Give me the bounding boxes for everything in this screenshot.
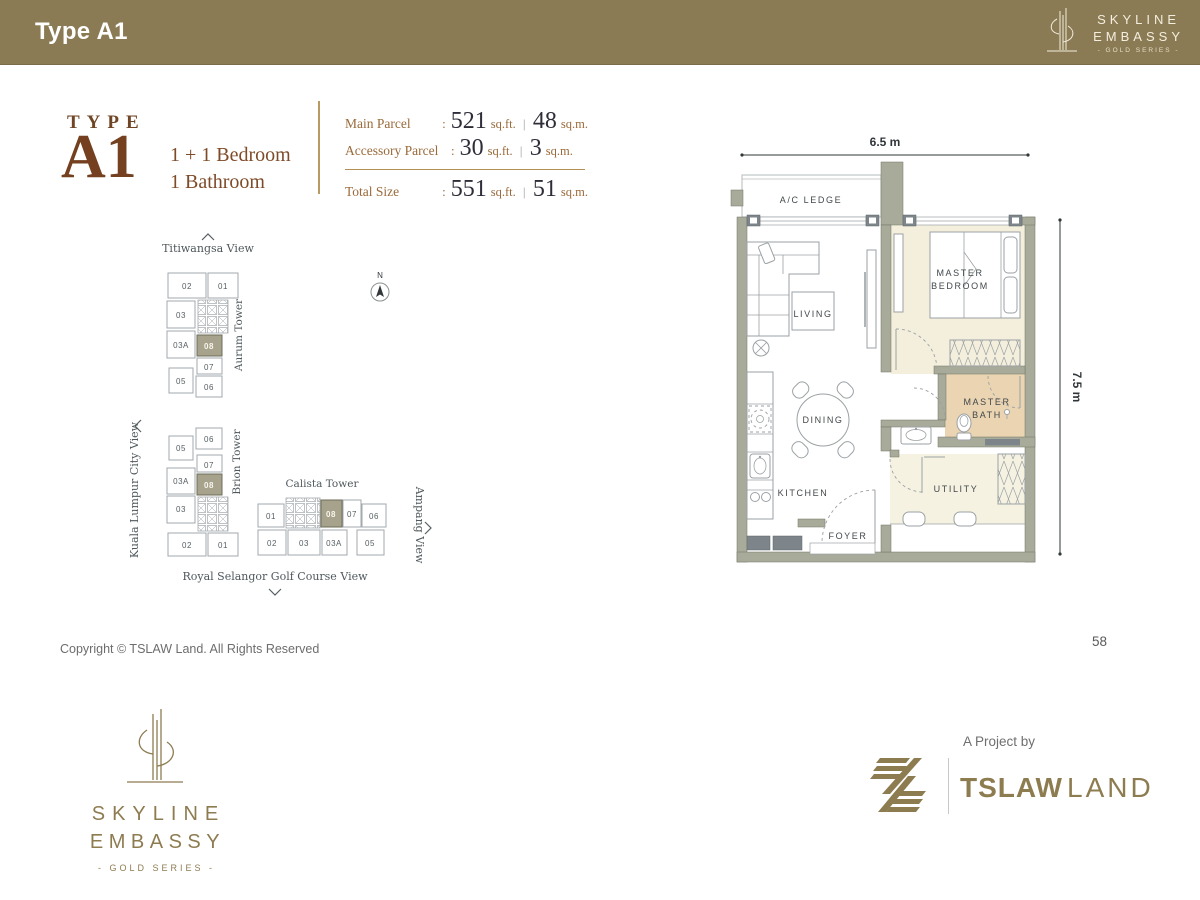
header-brand-logo: SKYLINE EMBASSY - GOLD SERIES - [1040,5,1184,59]
utility-wardrobe [998,454,1025,504]
unit-label: 06 [204,383,214,392]
parcel-sqm: 51 [533,176,557,203]
developer-name: TSLAWLAND [960,772,1154,804]
developer-block: A Project by TSLAWLAND [860,732,1160,842]
brion-tower: 06 05 07 03A 08 03 02 01 Brion Tower [167,428,243,556]
parcel-separator: | [520,144,523,158]
unit-label: 01 [218,541,228,550]
title-bar: Type A1 SKYLINE EMBASSY - GOLD SERIES - [0,0,1200,65]
unit-label: 07 [347,510,357,519]
view-label-west: Kuala Lumpur City View [128,421,141,558]
chevron-up-icon [202,234,214,240]
compass-north-label: N [377,271,383,280]
dimension-height-label: 7.5 m [1070,372,1084,403]
page-number: 58 [1092,634,1107,649]
brand-name-line2: EMBASSY [1093,28,1184,45]
parcel-row-main: Main Parcel : 521 sq.ft. | 48 sq.m. [345,108,595,135]
lift-core [198,300,228,333]
bathroom-count: 1 Bathroom [170,169,291,196]
parcel-row-accessory: Accessory Parcel : 30 sq.ft. | 3 sq.m. [345,135,595,162]
unit-label: 02 [182,541,192,550]
bedroom-count: 1 + 1 Bedroom [170,142,291,169]
floor-plan-diagram: A/C LEDGE LIVING MASTER BEDROOM DINING M… [698,122,1096,610]
lift-core [286,498,320,528]
parcel-label: Total Size [345,184,442,200]
brand-series: - GOLD SERIES - [73,863,237,873]
unit-label: 03 [176,505,186,514]
header-brand-text: SKYLINE EMBASSY - GOLD SERIES - [1093,11,1184,54]
room-label-foyer: FOYER [828,531,867,541]
parcel-sqft-unit: sq.ft. [491,117,516,132]
unit-label: 01 [266,512,276,521]
room-label-living: LIVING [793,309,832,319]
shower-drain [1005,410,1010,415]
chevron-down-icon [269,589,281,595]
page-title: Type A1 [35,18,128,46]
parcel-size-panel: Main Parcel : 521 sq.ft. | 48 sq.m. Acce… [345,108,595,203]
parcel-sqft: 551 [451,176,487,203]
unit-label: 06 [369,512,379,521]
type-code: A1 [61,124,137,190]
skyline-tower-icon [1040,5,1084,59]
parcel-sqft: 30 [460,135,484,162]
view-label-north: Titiwangsa View [162,242,254,255]
copyright-text: Copyright © TSLAW Land. All Rights Reser… [60,642,319,656]
unit-label: 07 [204,363,214,372]
unit-label: 05 [176,377,186,386]
parcel-colon: : [442,184,446,200]
tslaw-emblem-icon [864,754,934,818]
parcel-sqft: 521 [451,108,487,135]
parcel-divider [345,169,585,170]
parcel-sqft-unit: sq.ft. [488,144,513,159]
unit-label: 02 [267,539,277,548]
unit-label-highlighted: 08 [204,342,214,351]
bath-ledge [985,439,1020,446]
view-label-south: Royal Selangor Golf Course View [182,570,368,583]
parcel-colon: : [442,116,446,132]
room-label-master-bath: MASTER [963,397,1010,407]
tower-name: Brion Tower [231,428,243,494]
unit-label-highlighted: 08 [326,510,336,519]
unit-label-highlighted: 08 [204,481,214,490]
unit-label: 06 [204,435,214,444]
room-label-master-bedroom: BEDROOM [931,281,989,291]
brand-name-line1: SKYLINE [1093,11,1184,28]
parcel-sqm: 48 [533,108,557,135]
room-label-kitchen: KITCHEN [778,488,829,498]
site-plan-diagram: Titiwangsa View Kuala Lumpur City View A… [108,228,448,608]
parcel-label: Accessory Parcel [345,143,451,159]
view-label-east: Ampang View [413,486,426,564]
room-label-utility: UTILITY [934,484,979,494]
brand-name-line2: EMBASSY [73,831,237,854]
unit-label: 03 [176,311,186,320]
room-label-master-bedroom: MASTER [936,268,983,278]
parcel-sqm: 3 [530,135,542,162]
parcel-label: Main Parcel [345,116,442,132]
unit-label: 03 [299,539,309,548]
brand-name-line1: SKYLINE [73,803,237,826]
bed-bath-summary: 1 + 1 Bedroom 1 Bathroom [170,142,291,196]
skyline-tower-icon [113,706,197,796]
unit-label: 03A [173,341,189,350]
unit-label: 05 [176,444,186,453]
parcel-separator: | [523,185,526,199]
project-by-text: A Project by [963,734,1035,749]
unit-label: 03A [326,539,342,548]
unit-label: 02 [182,282,192,291]
tower-name: Calista Tower [286,478,360,490]
room-label-dining: DINING [802,415,843,425]
parcel-sqm-unit: sq.m. [561,185,588,200]
unit-label: 01 [218,282,228,291]
tower-name: Aurum Tower [233,298,245,372]
unit-label: 05 [365,539,375,548]
parcel-sqm-unit: sq.m. [561,117,588,132]
developer-name-light: LAND [1067,772,1154,803]
parcel-colon: : [451,143,455,159]
vertical-divider [318,101,320,194]
dimension-height: 7.5 m [1058,218,1084,555]
unit-label: 07 [204,461,214,470]
unit-label: 03A [173,477,189,486]
calista-tower: Calista Tower 01 08 07 06 02 03 03A 05 [258,478,386,555]
aurum-tower: 02 01 03 03A 08 07 05 06 Aurum Tower [167,273,245,397]
parcel-sqft-unit: sq.ft. [491,185,516,200]
logo-divider [948,758,949,814]
room-label-ac-ledge: A/C LEDGE [780,195,842,205]
parcel-sqm-unit: sq.m. [546,144,573,159]
footer-brand-logo: SKYLINE EMBASSY - GOLD SERIES - [73,706,237,873]
dimension-width-label: 6.5 m [870,135,901,149]
parcel-row-total: Total Size : 551 sq.ft. | 51 sq.m. [345,176,595,203]
brand-series: - GOLD SERIES - [1093,47,1184,54]
tv-console [867,250,876,348]
wardrobe [950,340,1020,366]
room-label-master-bath: BATH [972,410,1002,420]
toilet [957,414,971,432]
parcel-separator: | [523,117,526,131]
compass-icon: N [364,268,396,308]
dimension-width: 6.5 m [740,135,1029,157]
developer-name-bold: TSLAW [960,772,1063,803]
lift-core [198,497,228,531]
